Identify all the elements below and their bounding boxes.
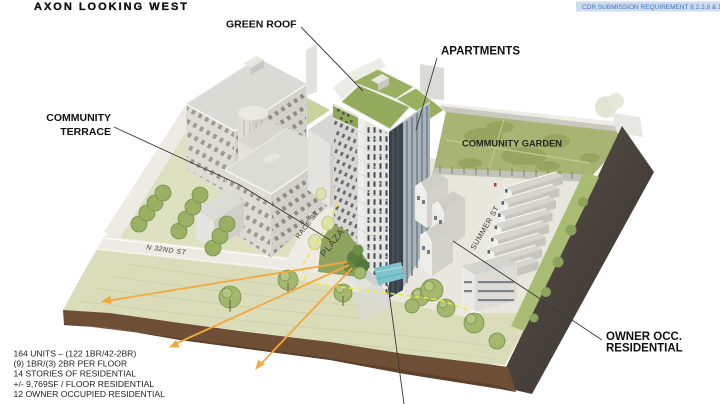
- svg-text:(9) 1BR/(3) 2BR PER FLOOR: (9) 1BR/(3) 2BR PER FLOOR: [14, 359, 128, 369]
- svg-text:APARTMENTS: APARTMENTS: [441, 46, 520, 58]
- svg-text:COMMUNITY GARDEN: COMMUNITY GARDEN: [462, 139, 562, 149]
- svg-text:COMMUNITY: COMMUNITY: [46, 112, 111, 124]
- svg-text:14 STORIES OF RESIDENTIAL: 14 STORIES OF RESIDENTIAL: [14, 369, 137, 379]
- svg-text:+/- 9,769SF / FLOOR RESIDENTIA: +/- 9,769SF / FLOOR RESIDENTIAL: [14, 379, 155, 389]
- svg-text:OWNER OCC.: OWNER OCC.: [606, 331, 682, 343]
- svg-text:TERRACE: TERRACE: [60, 126, 111, 138]
- svg-text:164 UNITS – (122 1BR/42-2BR): 164 UNITS – (122 1BR/42-2BR): [14, 349, 137, 359]
- svg-text:GREEN ROOF: GREEN ROOF: [226, 19, 297, 31]
- svg-text:RESIDENTIAL: RESIDENTIAL: [606, 343, 683, 355]
- svg-text:AXON LOOKING WEST: AXON LOOKING WEST: [34, 1, 189, 13]
- svg-text:12 OWNER OCCUPIED RESIDENTIAL: 12 OWNER OCCUPIED RESIDENTIAL: [14, 389, 166, 399]
- svg-text:CDR SUBMISSION REQUIREMENT 8.2: CDR SUBMISSION REQUIREMENT 8.2.3.8 & 10.…: [582, 4, 720, 11]
